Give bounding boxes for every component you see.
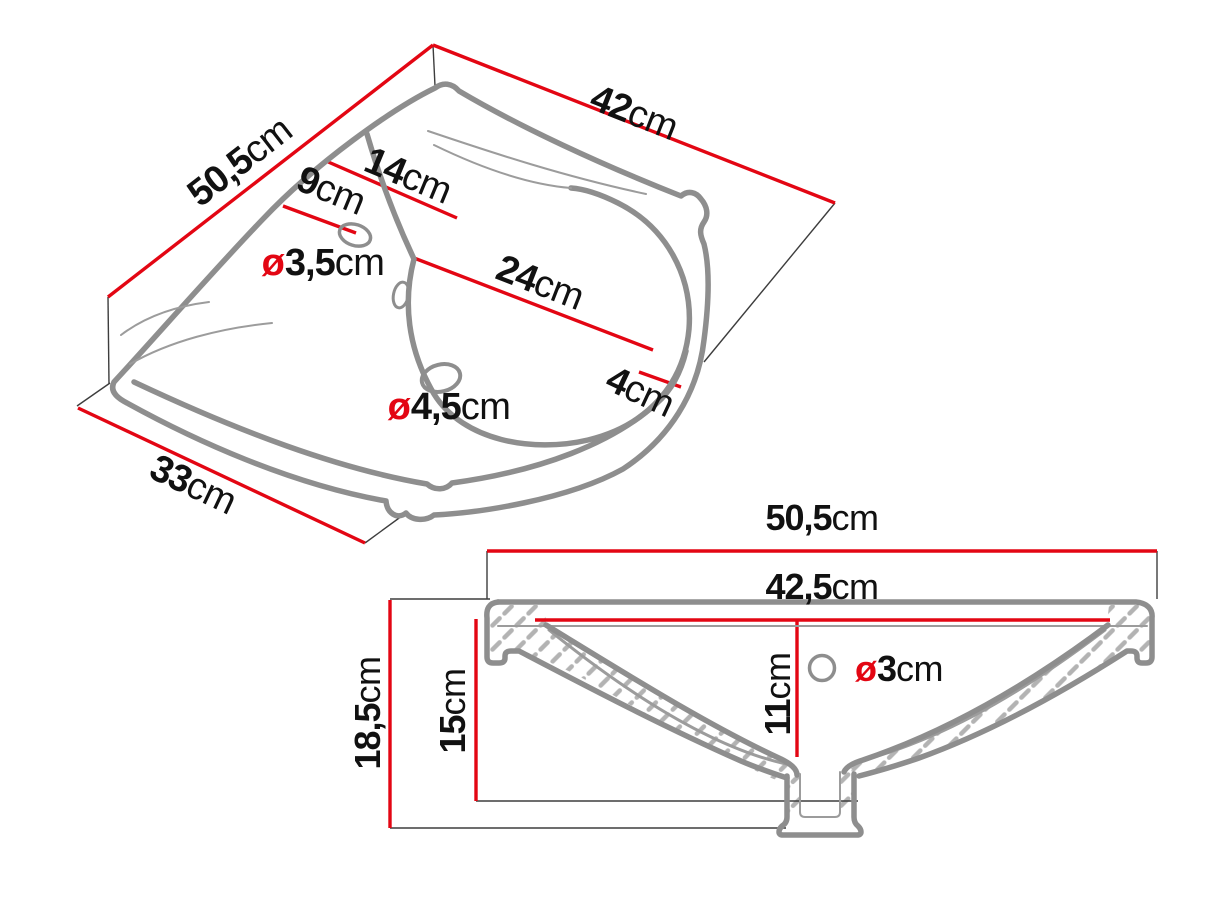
dim-label-height-18-5: 18,5cm bbox=[347, 656, 388, 769]
dim-label-overall-50-5: 50,5cm bbox=[765, 497, 878, 538]
dim-label-faucet-diameter-3-5: ø3,5cm bbox=[262, 242, 385, 284]
extension-left-corner-vertical bbox=[108, 297, 109, 384]
dim-label-drain-diameter-4-5: ø4,5cm bbox=[388, 386, 511, 428]
dim-label-inner-42-5: 42,5cm bbox=[765, 566, 878, 607]
dim-label-depth-15: 15cm bbox=[432, 668, 473, 753]
diagram-canvas: 50,5cm 42cm 33cm 14cm 9cm 24cm 4cm ø3,5c… bbox=[0, 0, 1225, 919]
washbasin-dimension-diagram: 50,5cm 42cm 33cm 14cm 9cm 24cm 4cm ø3,5c… bbox=[0, 0, 1225, 919]
dim-label-bowl-depth-11: 11cm bbox=[757, 652, 798, 735]
dim-label-overflow-diameter-3: ø3cm bbox=[855, 648, 943, 689]
